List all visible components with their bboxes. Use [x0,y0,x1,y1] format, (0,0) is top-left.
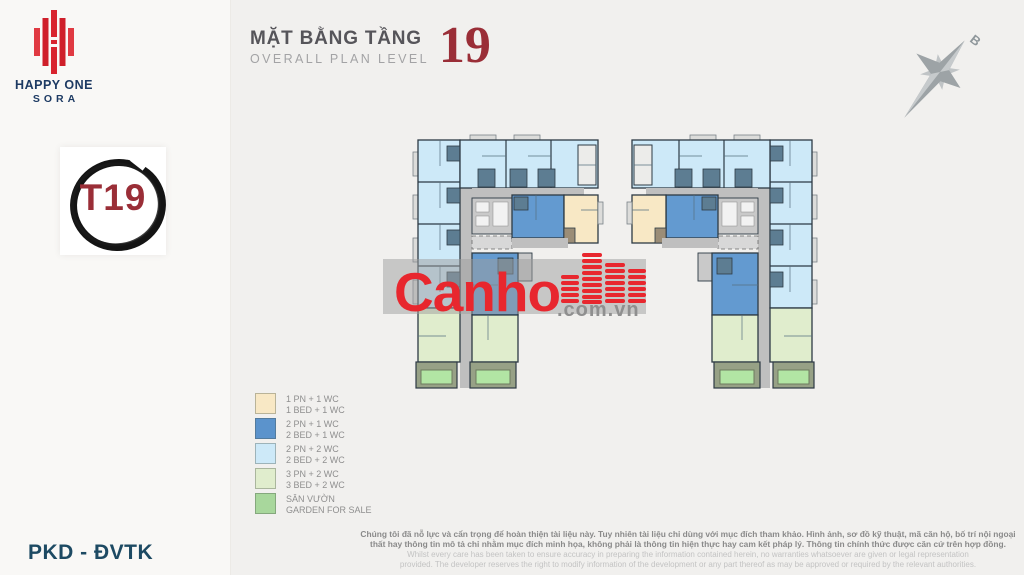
legend-label: 2 PN + 1 WC [286,419,345,430]
happy-one-bars-icon [34,10,74,74]
brand-logo: HAPPY ONE SORA [6,10,102,105]
plan-header: MẶT BẰNG TẦNG OVERALL PLAN LEVEL 19 [250,28,491,72]
tower-badge: T19 [60,147,166,255]
legend-item: 1 PN + 1 WC 1 BED + 1 WC [255,393,372,418]
legend-label: 1 PN + 1 WC [286,394,345,405]
legend-item: 2 PN + 2 WC 2 BED + 2 WC [255,443,372,468]
buildings-bars-icon [561,253,649,305]
page-title-en: OVERALL PLAN LEVEL [250,52,429,66]
compass-star-icon: B [893,18,1003,130]
legend-swatch-3bed [255,468,276,489]
disclaimer-vi-line2: thất hay thông tin mô tả chỉ nhằm mục đí… [352,539,1024,549]
disclaimer-vi-line1: Chúng tôi đã nỗ lực và cẩn trọng để hoàn… [352,529,1024,539]
legend-item: SÂN VƯỜN GARDEN FOR SALE [255,493,372,518]
legend-swatch-1bed [255,393,276,414]
tower-badge-label: T19 [60,177,166,219]
legend-label: SÂN VƯỜN [286,494,372,505]
sidebar: HAPPY ONE SORA T19 PKD - ĐVTK [0,0,231,575]
legend-item: 2 PN + 1 WC 2 BED + 1 WC [255,418,372,443]
legend-swatch-2bed2wc [255,443,276,464]
legend: 1 PN + 1 WC 1 BED + 1 WC 2 PN + 1 WC 2 B… [255,393,372,518]
legend-label: 3 PN + 2 WC [286,469,345,480]
legend-label: 3 BED + 2 WC [286,480,345,491]
footer-label: PKD - ĐVTK [28,541,153,565]
legend-label: GARDEN FOR SALE [286,505,372,516]
brand-subname: SORA [6,93,102,105]
disclaimer-en-line1: Whilst every care has been taken to ensu… [352,550,1024,560]
legend-swatch-2bed1wc [255,418,276,439]
legend-label: 2 PN + 2 WC [286,444,345,455]
compass-north-label: B [967,32,984,50]
brand-name: HAPPY ONE [6,78,102,92]
building-wing-right [627,135,817,388]
disclaimer: Chúng tôi đã nỗ lực và cẩn trọng để hoàn… [352,529,1024,570]
legend-item: 3 PN + 2 WC 3 BED + 2 WC [255,468,372,493]
watermark-brand: Canho [394,260,560,324]
legend-label: 1 BED + 1 WC [286,405,345,416]
legend-label: 2 BED + 2 WC [286,455,345,466]
level-number: 19 [439,20,491,72]
watermark-domain: .com.vn [557,299,640,322]
disclaimer-en-line2: provided. The developer reserves the rig… [352,560,1024,570]
brochure-page: HAPPY ONE SORA T19 PKD - ĐVTK MẶT BẰNG T… [0,0,1024,575]
legend-label: 2 BED + 1 WC [286,430,345,441]
page-title-vi: MẶT BẰNG TẦNG [250,28,429,50]
legend-swatch-garden [255,493,276,514]
